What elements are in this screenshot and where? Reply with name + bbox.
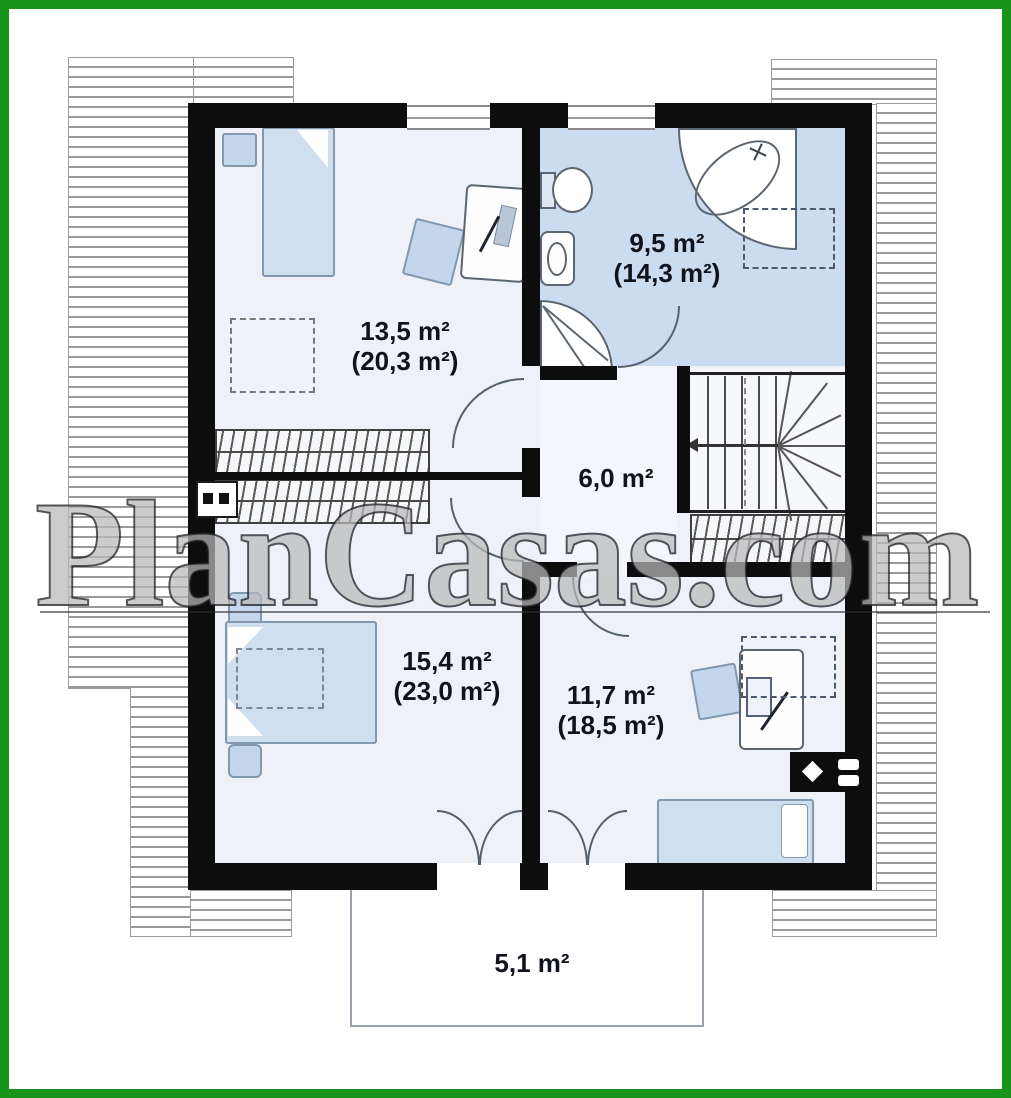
room-area: 13,5 m² <box>320 316 490 346</box>
room-label-balcony: 5,1 m² <box>447 948 617 978</box>
room-floor-area: (23,0 m²) <box>362 676 532 706</box>
roof-hatch-bottom-right <box>772 890 937 937</box>
stairs-center-line <box>694 444 778 447</box>
room-floor-area: (20,3 m²) <box>320 346 490 376</box>
sink-icon <box>540 231 575 286</box>
roof-window-dashed <box>230 318 315 393</box>
stairs-winder-line <box>778 445 845 447</box>
room-area: 9,5 m² <box>582 228 752 258</box>
pillow-icon <box>781 804 808 858</box>
nightstand-icon <box>222 133 257 167</box>
roof-window-dashed <box>743 208 835 269</box>
room-label-bedroom1: 13,5 m² (20,3 m²) <box>320 316 490 376</box>
bed-mattress-dashed <box>236 648 324 709</box>
flue-vent-icon <box>838 775 859 786</box>
chimney-icon-right <box>790 752 872 792</box>
wall-bottom-1 <box>188 863 437 890</box>
room-area: 5,1 m² <box>447 948 617 978</box>
stairs-top-line <box>690 372 845 375</box>
room-floor-area: (14,3 m²) <box>582 258 752 288</box>
room-label-bedroom3: 11,7 m² (18,5 m²) <box>526 680 696 740</box>
toilet-bowl-icon <box>552 167 593 213</box>
wall-top-3 <box>655 103 872 128</box>
room-area: 15,4 m² <box>362 646 532 676</box>
nightstand-icon <box>228 744 262 778</box>
wall-bottom-post <box>520 863 548 890</box>
roof-window-dashed <box>741 636 836 698</box>
room-label-bedroom2: 15,4 m² (23,0 m²) <box>362 646 532 706</box>
room-area: 11,7 m² <box>526 680 696 710</box>
sink-basin-icon <box>547 242 567 276</box>
chair-icon <box>690 662 744 720</box>
watermark-text: PlanCasas.com <box>35 478 979 630</box>
wall-top-2 <box>490 103 568 128</box>
wall-top-1 <box>188 103 407 128</box>
wall-bedroom-bathroom <box>522 128 540 366</box>
roof-hatch-left-lower <box>130 687 194 937</box>
room-label-bathroom: 9,5 m² (14,3 m²) <box>582 228 752 288</box>
wall-bottom-2 <box>625 863 872 890</box>
flue-vent-icon <box>838 759 859 770</box>
floor-plan-image: 13,5 m² (20,3 m²) 9,5 m² (14,3 m²) 6,0 m… <box>0 0 1011 1098</box>
room-floor-area: (18,5 m²) <box>526 710 696 740</box>
roof-hatch-top-right <box>771 59 937 105</box>
wall-bathroom-bottom-a <box>540 366 617 380</box>
roof-hatch-bottom-left <box>190 890 292 937</box>
window-top-left <box>407 105 490 130</box>
flue-diamond-icon <box>802 761 823 782</box>
window-top-right <box>568 105 655 130</box>
wardrobe-icon-bedroom1 <box>215 429 430 476</box>
